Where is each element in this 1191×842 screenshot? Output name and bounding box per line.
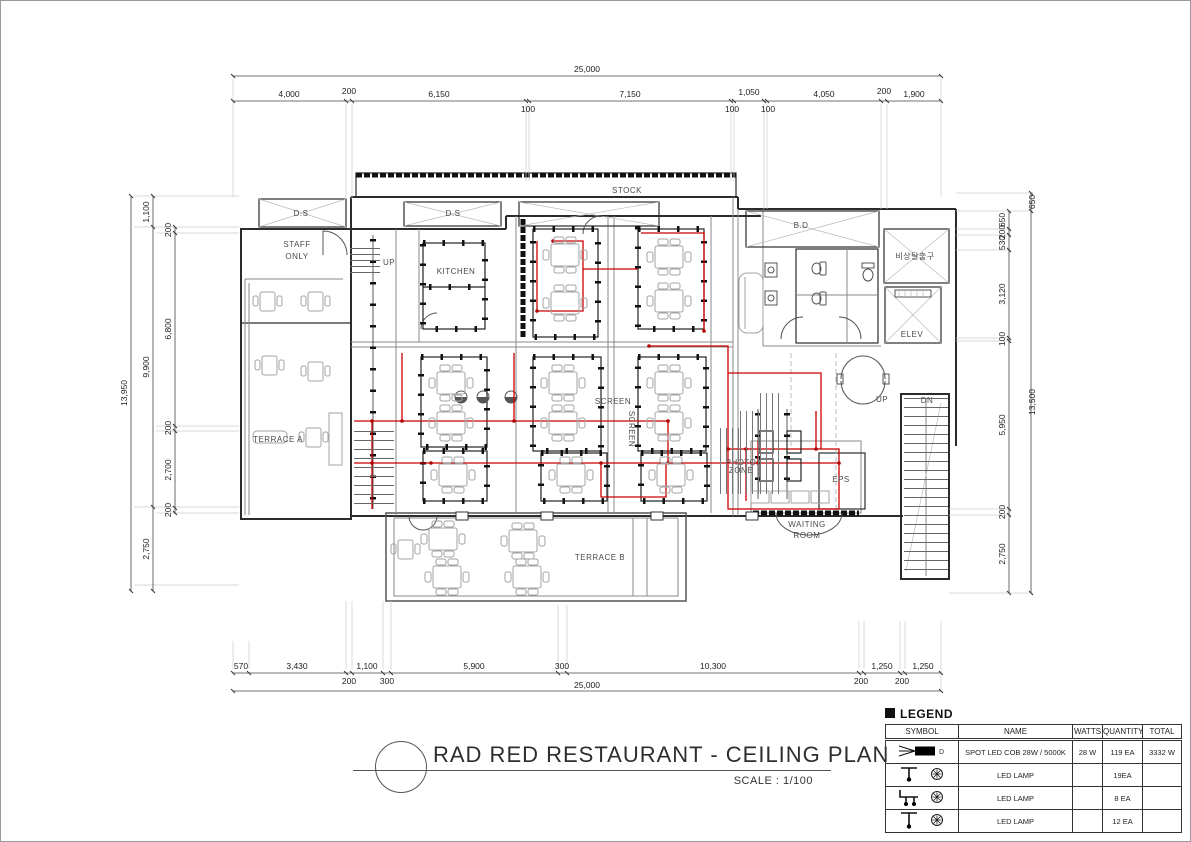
ceiling-plan-sheet: 25,000 4,000 200 6,150 100 7,150 100 1,0… xyxy=(0,0,1191,842)
title-underline xyxy=(353,770,831,771)
svg-text:650: 650 xyxy=(1027,195,1037,209)
dimensions: 25,000 4,000 200 6,150 100 7,150 100 1,0… xyxy=(119,64,1037,693)
svg-text:2,750: 2,750 xyxy=(997,543,1007,565)
label-up: UP xyxy=(383,258,395,267)
svg-text:5,900: 5,900 xyxy=(463,661,485,671)
svg-text:9,900: 9,900 xyxy=(141,356,151,378)
legend-col-symbol: SYMBOL xyxy=(886,725,959,740)
room-label-emergency-exit: 비상탈출구 xyxy=(895,251,934,261)
svg-text:200: 200 xyxy=(163,503,173,517)
svg-text:6,800: 6,800 xyxy=(163,318,173,340)
photo-zone-steps-1 xyxy=(720,428,740,494)
svg-text:300: 300 xyxy=(555,661,569,671)
led-lamp-branched-icon xyxy=(886,787,959,810)
svg-text:200: 200 xyxy=(163,421,173,435)
label-up-2: UP xyxy=(876,395,888,404)
led-lamp-pendant-icon xyxy=(886,764,959,787)
room-label-waiting-1: WAITING xyxy=(788,520,825,529)
photo-zone-steps-3 xyxy=(760,393,781,494)
svg-text:200: 200 xyxy=(163,223,173,237)
room-label-eps: EPS xyxy=(832,475,850,484)
svg-text:5,950: 5,950 xyxy=(997,414,1007,436)
photo-zone-steps-2 xyxy=(740,411,760,494)
svg-text:200: 200 xyxy=(997,505,1007,519)
room-label-staff-2: ONLY xyxy=(285,252,308,261)
spot-led-icon: D xyxy=(886,740,959,764)
legend-row-led-lamp-3: LED LAMP 12 EA xyxy=(886,810,1182,833)
room-label-kitchen: KITCHEN xyxy=(437,267,476,276)
room-label-terrace-b: TERRACE B xyxy=(575,553,625,562)
led-lamp-drop-icon xyxy=(886,810,959,833)
label-duct-1: D.S xyxy=(294,209,309,218)
svg-text:1,900: 1,900 xyxy=(903,89,925,99)
legend-table: SYMBOL NAME WATTS QUANTITY TOTAL D SPOT … xyxy=(885,724,1182,833)
sheet-title: RAD RED RESTAURANT - CEILING PLAN xyxy=(433,742,889,768)
room-label-elevator: ELEV xyxy=(901,330,924,339)
legend-row-led-lamp-2: LED LAMP 8 EA xyxy=(886,787,1182,810)
svg-text:4,050: 4,050 xyxy=(813,89,835,99)
svg-text:1,250: 1,250 xyxy=(912,661,934,671)
svg-text:4,000: 4,000 xyxy=(278,89,300,99)
svg-text:200: 200 xyxy=(854,676,868,686)
stairs-up-small xyxy=(350,248,380,274)
legend-col-quantity: QUANTITY xyxy=(1103,725,1143,740)
dim-bottom-total: 25,000 xyxy=(574,680,600,690)
room-label-screen-v: SCREEN xyxy=(627,411,636,447)
svg-text:570: 570 xyxy=(234,661,248,671)
stairs-left xyxy=(354,431,394,509)
svg-text:200: 200 xyxy=(895,676,909,686)
legend: LEGEND SYMBOL NAME WATTS QUANTITY TOTAL … xyxy=(885,707,1183,833)
svg-text:1,100: 1,100 xyxy=(356,661,378,671)
room-label-terrace-a: TERRACE A xyxy=(253,435,303,444)
title-bubble-circle xyxy=(375,741,427,793)
svg-text:2,750: 2,750 xyxy=(141,538,151,560)
svg-text:1,100: 1,100 xyxy=(141,201,151,223)
svg-text:100: 100 xyxy=(761,104,775,114)
svg-text:3,120: 3,120 xyxy=(997,283,1007,305)
svg-text:10,300: 10,300 xyxy=(700,661,726,671)
svg-text:100: 100 xyxy=(725,104,739,114)
legend-col-watts: WATTS xyxy=(1073,725,1103,740)
room-label-stock: STOCK xyxy=(612,186,642,195)
svg-text:2,700: 2,700 xyxy=(163,459,173,481)
svg-text:D: D xyxy=(939,749,944,756)
legend-col-name: NAME xyxy=(959,725,1073,740)
svg-text:1,250: 1,250 xyxy=(871,661,893,671)
legend-header-row: SYMBOL NAME WATTS QUANTITY TOTAL xyxy=(886,725,1182,740)
room-label-waiting-2: ROOM xyxy=(794,531,821,540)
svg-text:3,430: 3,430 xyxy=(286,661,308,671)
legend-row-led-lamp-1: LED LAMP 19EA xyxy=(886,764,1182,787)
svg-text:300: 300 xyxy=(380,676,394,686)
svg-text:7,150: 7,150 xyxy=(619,89,641,99)
svg-text:530: 530 xyxy=(997,236,1007,250)
dim-left-total: 13,950 xyxy=(119,380,129,406)
svg-text:1,050: 1,050 xyxy=(738,87,760,97)
svg-text:6,150: 6,150 xyxy=(428,89,450,99)
sheet-scale: SCALE : 1/100 xyxy=(601,775,813,787)
label-duct-2: D.S xyxy=(446,209,461,218)
svg-text:200: 200 xyxy=(342,86,356,96)
legend-heading: LEGEND xyxy=(885,707,1183,721)
stairs-right xyxy=(904,398,948,576)
ceiling-lamps xyxy=(455,391,517,403)
legend-square-icon xyxy=(885,708,895,718)
dim-right-total: 13,500 xyxy=(1027,389,1037,415)
legend-col-total: TOTAL xyxy=(1143,725,1182,740)
room-label-screen-h: SCREEN xyxy=(595,397,631,406)
svg-text:200: 200 xyxy=(877,86,891,96)
dim-top-total: 25,000 xyxy=(574,64,600,74)
room-label-staff-1: STAFF xyxy=(283,240,310,249)
svg-text:100: 100 xyxy=(521,104,535,114)
legend-row-spot-led: D SPOT LED COB 28W / 5000K 28 W 119 EA 3… xyxy=(886,740,1182,764)
label-duct-3: B.D xyxy=(794,221,809,230)
svg-text:100: 100 xyxy=(997,332,1007,346)
doors xyxy=(323,216,889,535)
svg-text:200: 200 xyxy=(342,676,356,686)
